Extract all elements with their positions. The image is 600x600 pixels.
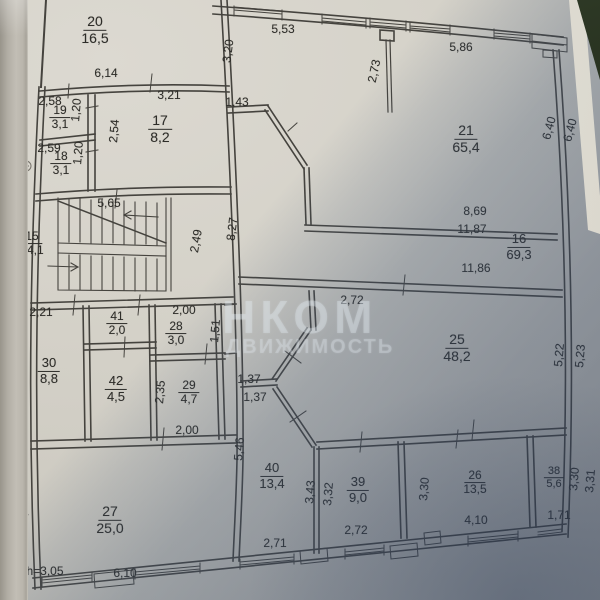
room-label-27: 2725,0 (96, 504, 123, 536)
dim-label: 5,46 (231, 437, 247, 461)
floorplan-drawing (0, 0, 600, 600)
dim-label: 3,43 (302, 480, 318, 504)
floor-plan-photo: 2016,5193,1183,1178,21514,12165,41669,32… (0, 0, 600, 600)
room-label-38: 385,6 (544, 465, 564, 491)
dim-label: 3,20 (220, 39, 237, 64)
dim-label: 8,27 (224, 217, 241, 242)
dim-label: 6,10 (113, 566, 136, 580)
dim-label: 11,87 (457, 222, 486, 236)
room-label-40: 4013,4 (259, 461, 284, 491)
dim-label: 1,51 (207, 319, 223, 343)
dim-label: 2,54 (106, 119, 122, 143)
dim-label: 2,72 (344, 523, 367, 537)
dim-label: 2,00 (175, 423, 198, 437)
dim-label: 1,37 (243, 390, 266, 404)
dim-label: h=3,05 (26, 564, 63, 578)
room-label-20: 2016,5 (81, 14, 108, 46)
dim-label: 1,37 (237, 372, 260, 386)
dim-label: 2,21 (29, 305, 52, 319)
dim-label: 5,22 (551, 343, 567, 367)
dim-label: 8,69 (463, 204, 486, 218)
dimension-ticks (68, 74, 474, 452)
dim-label: 5,23 (572, 344, 588, 368)
dim-label: 5,86 (449, 40, 472, 54)
stairs (48, 198, 171, 291)
room-label-26: 2613,5 (463, 469, 486, 497)
room-label-30: 308,8 (38, 356, 60, 386)
room-label-39: 399,0 (347, 475, 369, 505)
dim-label: 2,71 (263, 536, 286, 550)
dim-label: 3,32 (320, 482, 336, 506)
page-edge-left (0, 0, 28, 600)
dim-label: 3,30 (416, 477, 432, 501)
dim-label: 2,59 (37, 141, 60, 155)
dim-label: 3,31 (582, 469, 598, 493)
dim-label: 1,71 (547, 508, 570, 522)
dim-label: 1,43 (225, 95, 248, 109)
room-label-42: 424,5 (105, 374, 127, 404)
dim-label: 11,86 (461, 261, 490, 275)
room-label-29: 294,7 (178, 379, 199, 407)
room-label-17: 178,2 (148, 113, 172, 145)
dim-label: 2,72 (340, 293, 363, 307)
dim-label: 3,21 (157, 88, 180, 102)
room-label-16: 1669,3 (506, 232, 531, 262)
room-label-21: 2165,4 (452, 123, 479, 155)
room-label-25: 2548,2 (443, 332, 470, 364)
dim-label: 4,10 (464, 513, 487, 527)
dim-label: 2,35 (152, 380, 168, 404)
dim-label: 1,20 (68, 98, 84, 122)
dim-label: 2,00 (172, 303, 195, 317)
dim-label: 5,53 (271, 22, 294, 36)
dim-label: 2,58 (38, 94, 61, 108)
dim-label: 6,14 (94, 66, 117, 80)
room-label-28: 283,0 (165, 320, 186, 348)
room-label-41: 412,0 (106, 310, 127, 338)
dim-label: 3,30 (566, 467, 582, 491)
dim-label: 5,65 (97, 196, 120, 210)
dim-label: 1,20 (70, 141, 86, 165)
